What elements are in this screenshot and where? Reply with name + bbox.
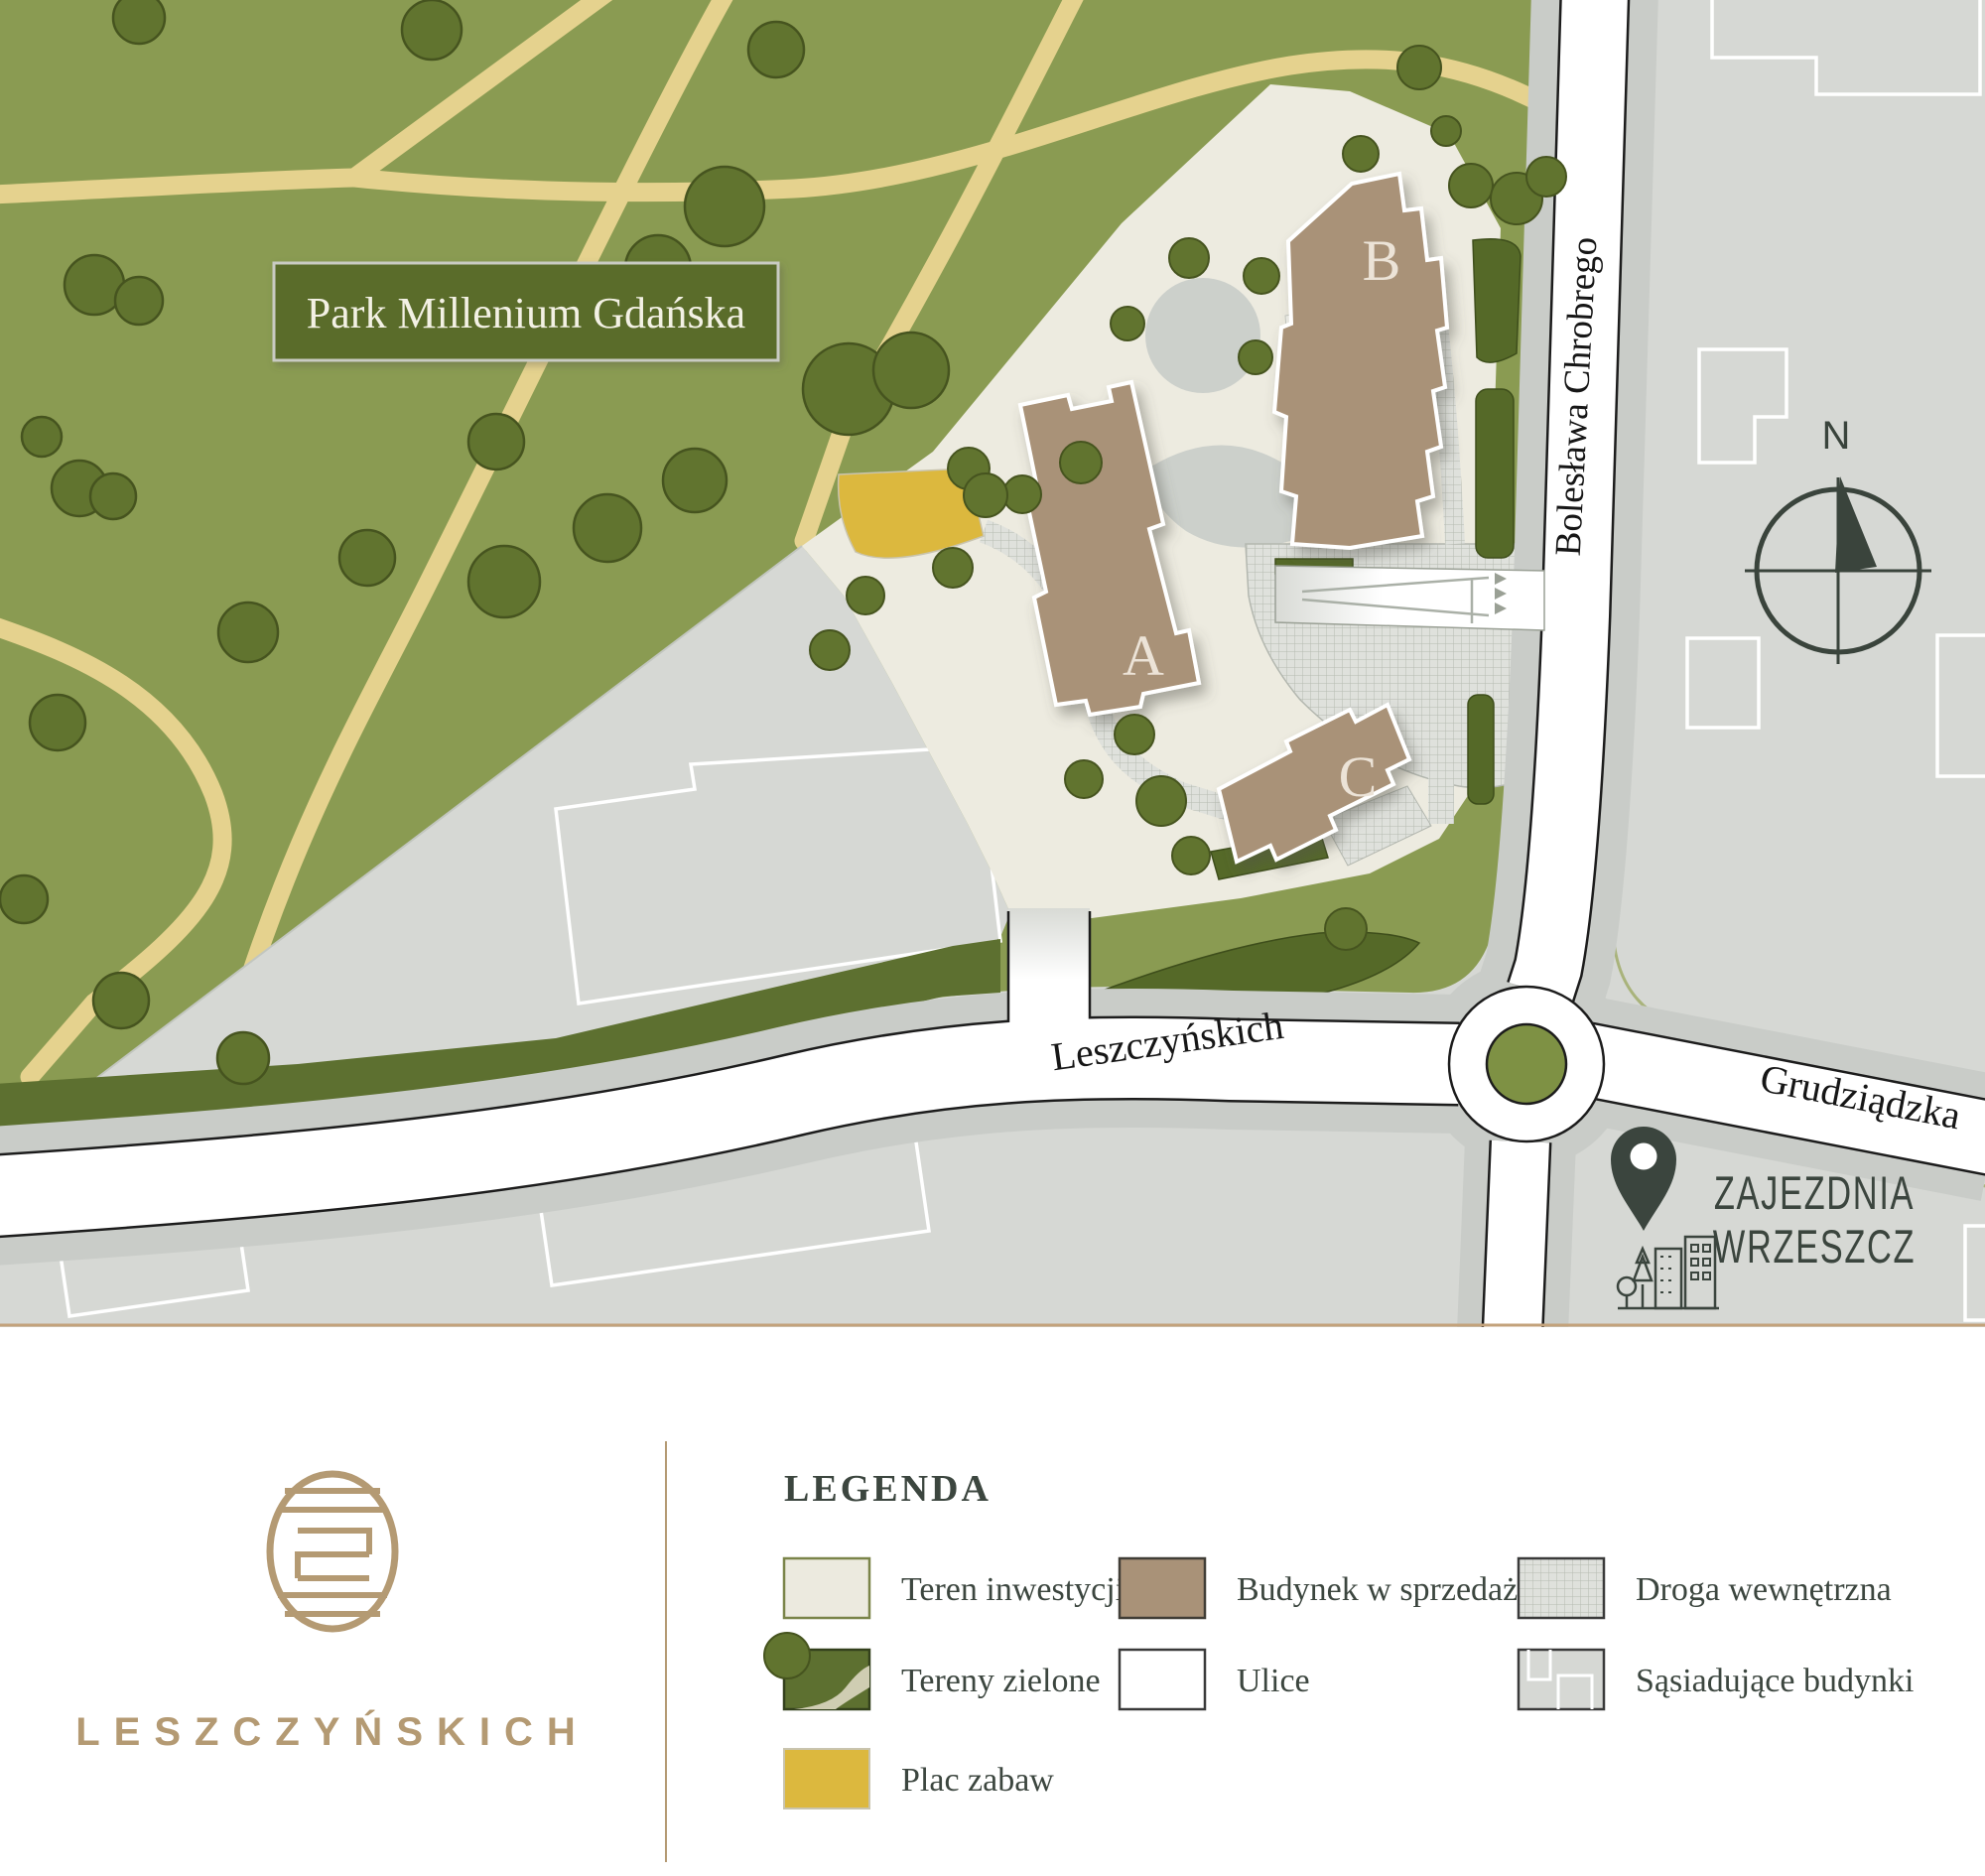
- legend: LEGENDA Teren inwestycji Budynek w sprze…: [764, 1468, 1914, 1809]
- building-b[interactable]: [1274, 174, 1447, 548]
- svg-text:Budynek w sprzedaży: Budynek w sprzedaży: [1237, 1571, 1534, 1608]
- legend-item-internal-road: Droga wewnętrzna: [1519, 1558, 1892, 1618]
- brand-emblem-glyph: [278, 1491, 387, 1614]
- park-label: Park Millenium Gdańska: [274, 263, 778, 360]
- swatch-building-for-sale: [1120, 1558, 1205, 1618]
- building-a-label: A: [1123, 623, 1164, 688]
- poi-label-line2: WRZESZCZ: [1713, 1221, 1916, 1273]
- legend-title: LEGENDA: [784, 1468, 992, 1510]
- poi-label-line1: ZAJEZDNIA: [1714, 1167, 1915, 1219]
- svg-text:Ulice: Ulice: [1237, 1663, 1310, 1699]
- svg-text:Tereny zielone: Tereny zielone: [901, 1663, 1101, 1699]
- svg-text:Teren inwestycji: Teren inwestycji: [901, 1571, 1125, 1608]
- legend-item-streets: Ulice: [1120, 1650, 1310, 1709]
- legend-item-playground: Plac zabaw: [784, 1749, 1054, 1809]
- svg-text:Plac zabaw: Plac zabaw: [901, 1762, 1054, 1799]
- svg-text:Droga wewnętrzna: Droga wewnętrzna: [1636, 1571, 1892, 1608]
- site-plan-map: A B C Park Mille: [0, 0, 1985, 1876]
- roundabout: [1449, 987, 1604, 1141]
- legend-item-green-areas: Tereny zielone: [764, 1633, 1101, 1709]
- swatch-playground: [784, 1749, 869, 1809]
- svg-text:Sąsiadujące budynki: Sąsiadujące budynki: [1636, 1663, 1914, 1699]
- brand-name: LESZCZYŃSKICH: [75, 1709, 590, 1754]
- brand-logo: LESZCZYŃSKICH: [75, 1474, 590, 1754]
- compass-north-label: N: [1822, 414, 1851, 458]
- footer: LESZCZYŃSKICH LEGENDA Teren inwestycji B…: [75, 1441, 1914, 1862]
- swatch-internal-road: [1519, 1558, 1604, 1618]
- legend-item-neighboring-buildings: Sąsiadujące budynki: [1519, 1650, 1914, 1709]
- masterplan-page: A B C Park Mille: [0, 0, 1985, 1876]
- legend-item-investment-area: Teren inwestycji: [784, 1558, 1125, 1618]
- site-entrance-drive: [1275, 566, 1544, 630]
- building-b-label: B: [1363, 228, 1401, 293]
- swatch-investment-area: [784, 1558, 869, 1618]
- building-c-label: C: [1339, 744, 1378, 809]
- svg-text:Park Millenium Gdańska: Park Millenium Gdańska: [307, 289, 745, 337]
- swatch-streets: [1120, 1650, 1205, 1709]
- legend-item-building-for-sale: Budynek w sprzedaży: [1120, 1558, 1534, 1618]
